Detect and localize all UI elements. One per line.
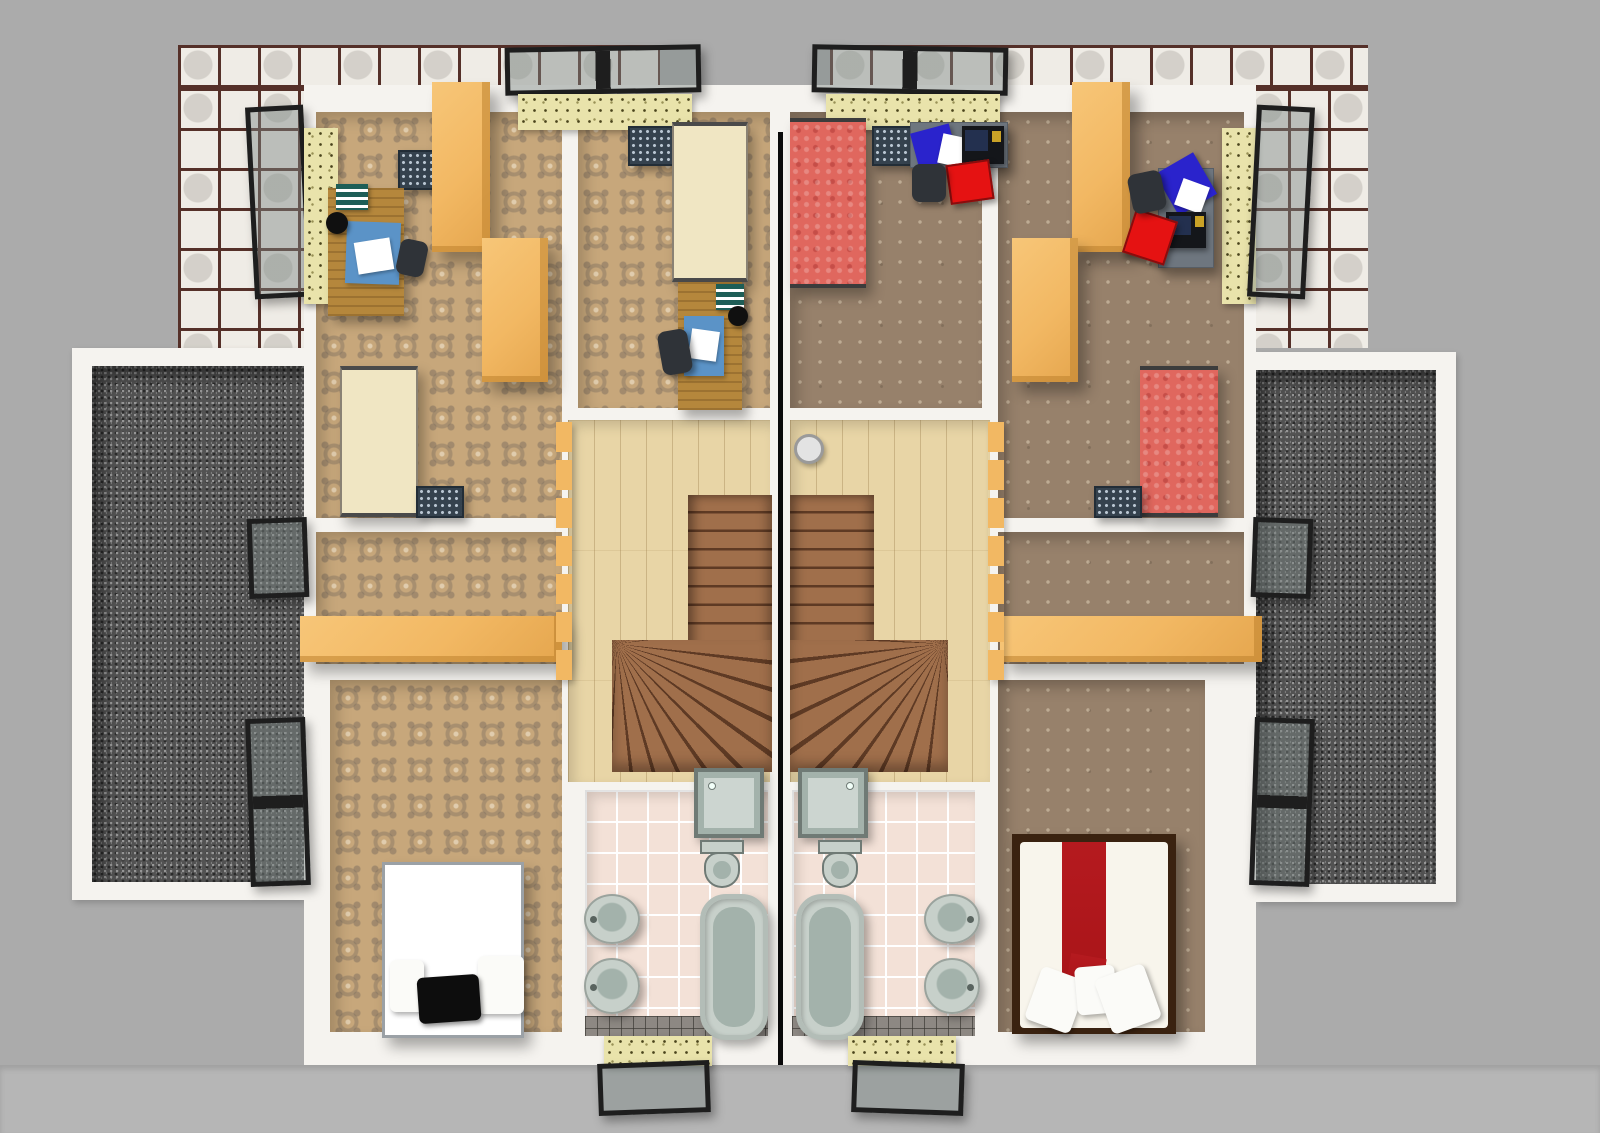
white-paper — [354, 237, 395, 274]
laptop-logo — [1195, 216, 1204, 227]
toilet — [818, 840, 862, 888]
radiator — [1094, 486, 1142, 518]
casement-window-front-right — [1247, 105, 1315, 300]
laptop-screen — [965, 130, 988, 151]
black-chair — [912, 164, 946, 202]
wash-basin — [924, 958, 980, 1014]
roof-skylight-top-left — [505, 44, 702, 95]
roof-skylight-bottom-left — [597, 1060, 711, 1116]
white-pillow — [478, 956, 524, 1014]
terrace-window-left-middle — [247, 517, 310, 599]
bathtub — [700, 894, 768, 1040]
orange-balustrade — [988, 422, 1004, 680]
black-pillow — [416, 974, 481, 1024]
party-wall-line — [778, 132, 783, 1065]
toilet-bowl — [822, 852, 857, 888]
toilet-bowl — [704, 852, 739, 888]
red-chair — [945, 159, 994, 205]
terrace-window-right-middle — [1251, 517, 1314, 599]
black-lamp — [728, 306, 748, 326]
shower-drain — [846, 782, 854, 790]
tall-orange-wardrobe — [432, 82, 490, 252]
bathtub-basin — [809, 907, 851, 1027]
faucet — [967, 984, 974, 991]
wash-basin — [924, 894, 980, 944]
wash-basin — [584, 894, 640, 944]
red-single-bed — [1140, 366, 1218, 517]
floor-plan-canvas — [0, 0, 1600, 1133]
left-stair-flight — [688, 495, 772, 652]
white-round-basket — [794, 434, 824, 464]
roof-lower-band — [0, 1065, 1600, 1133]
right-winder-steps — [790, 640, 948, 772]
orange-dresser — [1012, 238, 1078, 382]
faucet — [590, 916, 597, 923]
white-paper — [688, 328, 720, 362]
orange-dresser — [482, 238, 548, 382]
long-orange-sideboard — [300, 616, 562, 662]
roof-skylight-bottom-right — [851, 1060, 965, 1116]
cream-single-bed — [672, 122, 748, 282]
radiator — [628, 126, 676, 166]
toilet-bowl-inner — [713, 861, 730, 879]
wash-basin — [584, 958, 640, 1014]
terrace-window-right-rear — [1249, 717, 1315, 887]
toilet — [700, 840, 744, 888]
skylight-sill-top-left — [518, 94, 692, 130]
red-single-bed — [790, 118, 866, 288]
radiator — [416, 486, 464, 518]
long-orange-sideboard — [1000, 616, 1262, 662]
terrace-window-left-rear — [245, 717, 311, 887]
roof-skylight-top-right — [812, 44, 1009, 95]
shower-cabin — [694, 768, 764, 838]
faucet — [967, 916, 974, 923]
casement-window-front-left — [245, 105, 313, 300]
left-winder-steps — [612, 640, 772, 772]
striped-books — [336, 184, 368, 210]
shower-drain — [708, 782, 716, 790]
right-stair-flight — [790, 495, 874, 652]
shower-cabin — [798, 768, 868, 838]
tall-orange-wardrobe — [1072, 82, 1130, 252]
toilet-bowl-inner — [831, 861, 848, 879]
bathtub — [796, 894, 864, 1040]
orange-balustrade — [556, 422, 572, 680]
laptop-logo — [992, 131, 1001, 142]
bathtub-basin — [713, 907, 755, 1027]
black-lamp — [326, 212, 348, 234]
cream-single-bed — [340, 366, 418, 517]
laptop — [962, 126, 1004, 164]
faucet — [590, 984, 597, 991]
